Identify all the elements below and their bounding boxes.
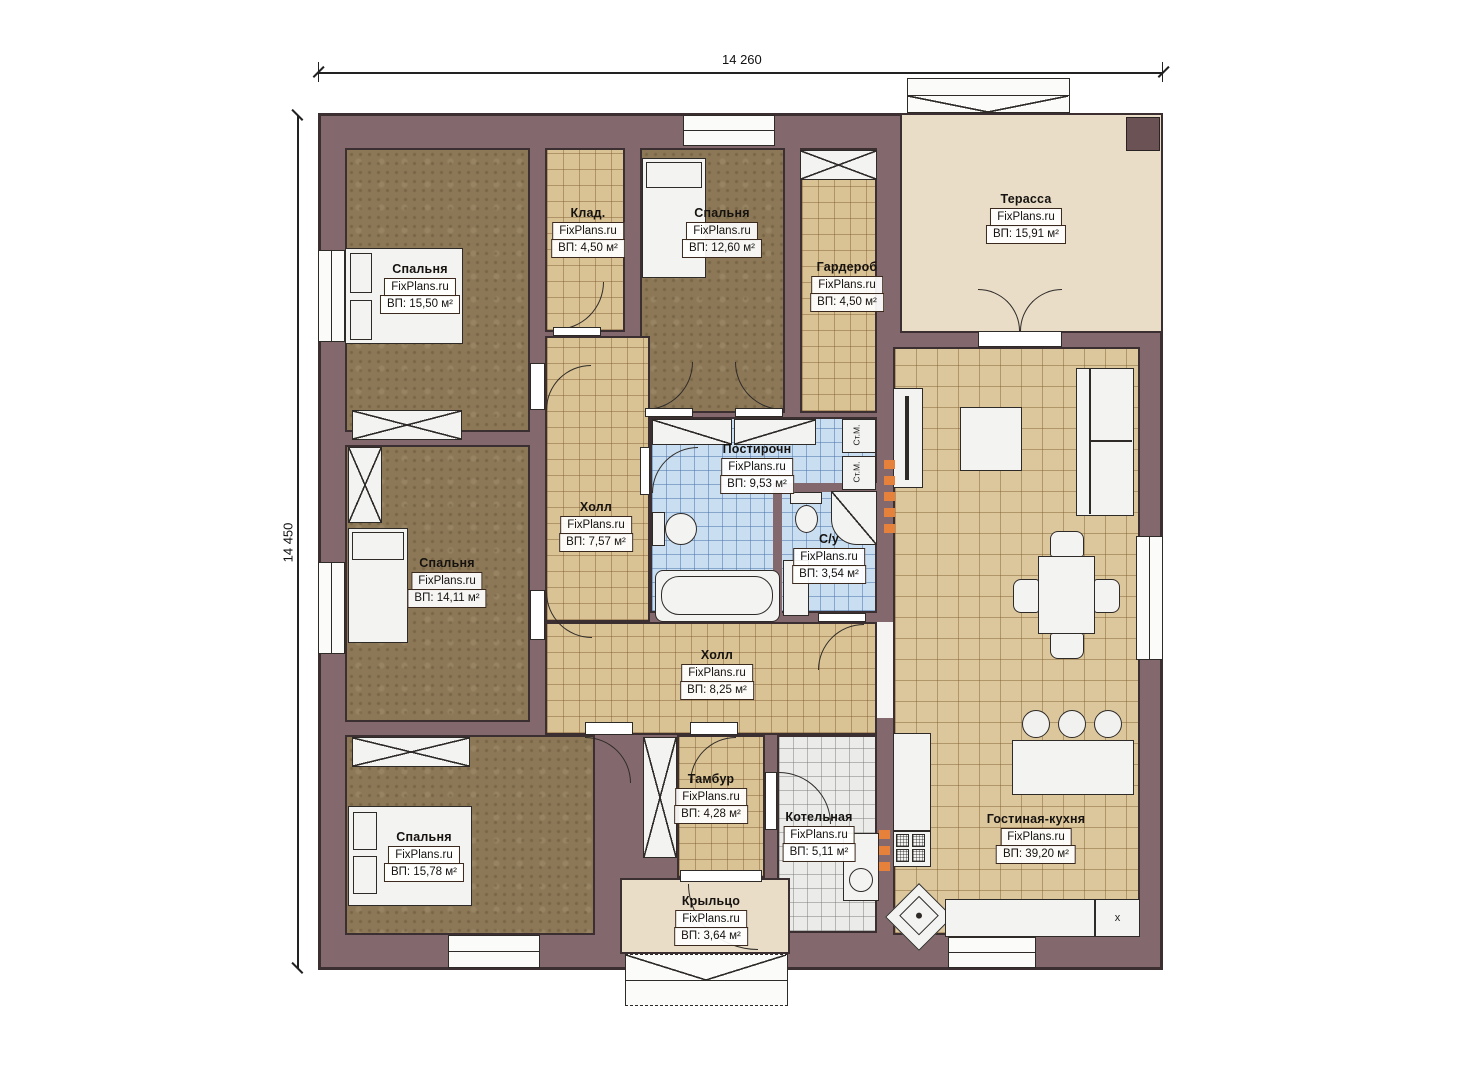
room-area: ВП: 15,91 м² — [986, 225, 1066, 244]
radiator — [879, 830, 890, 878]
room-label-hall-2: Холл FixPlans.ru ВП: 8,25 м² — [680, 648, 754, 700]
room-label-bedroom-3: Спальня FixPlans.ru ВП: 14,11 м² — [407, 556, 486, 608]
kitchen-counter-bottom — [945, 899, 1095, 937]
dimension-line-left — [297, 115, 299, 968]
watermark: FixPlans.ru — [1000, 828, 1072, 847]
room-label-bathroom: С/у FixPlans.ru ВП: 3,54 м² — [792, 532, 866, 584]
watermark: FixPlans.ru — [560, 516, 632, 535]
watermark: FixPlans.ru — [675, 910, 747, 929]
sofa — [1076, 368, 1134, 516]
room-area: ВП: 3,54 м² — [792, 565, 866, 584]
dimension-line-top — [318, 72, 1163, 74]
room-label-terrace: Терасса FixPlans.ru ВП: 15,91 м² — [986, 192, 1066, 244]
chair — [1094, 579, 1120, 613]
pillow — [353, 812, 377, 850]
watermark: FixPlans.ru — [411, 572, 483, 591]
kitchen-counter-left — [893, 733, 931, 831]
watermark: FixPlans.ru — [721, 458, 793, 477]
window-bedroom-master — [318, 250, 345, 342]
room-label-living-kitchen: Гостиная-кухня FixPlans.ru ВП: 39,20 м² — [987, 812, 1086, 864]
passage-hall-living — [877, 622, 893, 718]
dimension-ext — [1162, 62, 1163, 82]
wardrobe — [352, 410, 462, 440]
watermark: FixPlans.ru — [388, 846, 460, 865]
coffee-table — [960, 407, 1022, 471]
room-area: ВП: 39,20 м² — [996, 845, 1076, 864]
wardrobe — [800, 150, 877, 180]
bar-stool — [1058, 710, 1086, 738]
door-bathroom — [818, 613, 866, 622]
door-klad — [553, 327, 601, 336]
pillow — [646, 162, 702, 188]
pillow — [352, 532, 404, 560]
room-area: ВП: 5,11 м² — [783, 843, 856, 862]
room-label-laundry: Постирочн FixPlans.ru ВП: 9,53 м² — [720, 442, 794, 494]
fridge-label: x — [1115, 912, 1121, 924]
door-tambur — [690, 722, 738, 735]
window-kitchen — [948, 937, 1036, 968]
door-bedroom-2 — [645, 408, 693, 417]
door-kotelnaya — [765, 772, 777, 830]
room-area: ВП: 7,57 м² — [559, 533, 633, 552]
room-area: ВП: 15,50 м² — [380, 295, 460, 314]
room-area: ВП: 12,60 м² — [682, 239, 762, 258]
floor-plan-canvas: 14 260 14 450 — [0, 0, 1473, 1080]
door-bedroom-4 — [585, 722, 633, 735]
terrace-column — [1126, 117, 1160, 151]
window-living — [1136, 536, 1163, 660]
terrace-window-icon — [907, 78, 1070, 113]
closet-tambur — [643, 737, 677, 858]
door-bedroom-master — [530, 363, 545, 410]
tv-screen — [905, 396, 909, 480]
wardrobe — [348, 447, 382, 523]
radiator — [884, 460, 895, 538]
wardrobe — [352, 737, 470, 767]
room-label-bedroom-2: Спальня FixPlans.ru ВП: 12,60 м² — [682, 206, 762, 258]
toilet-bowl — [665, 513, 697, 545]
room-label-klad: Клад. FixPlans.ru ВП: 4,50 м² — [551, 206, 625, 258]
room-area: ВП: 9,53 м² — [720, 475, 794, 494]
toilet-bowl — [795, 505, 818, 533]
chair — [1050, 531, 1084, 557]
window-bedroom-2 — [683, 115, 775, 146]
bathtub — [655, 570, 780, 622]
pillow — [350, 300, 372, 340]
chair — [1013, 579, 1039, 613]
watermark: FixPlans.ru — [675, 788, 747, 807]
door-bedroom-3 — [530, 590, 545, 640]
kitchen-island — [1012, 740, 1134, 795]
watermark: FixPlans.ru — [686, 222, 758, 241]
porch-steps — [625, 954, 788, 1006]
terrace-door-sill — [978, 331, 1062, 347]
window-bedroom-4 — [448, 935, 540, 968]
room-label-garderob: Гардероб FixPlans.ru ВП: 4,50 м² — [810, 260, 884, 312]
toilet-tank — [790, 492, 822, 504]
washing-machine-label: Ст.М. — [851, 425, 861, 446]
room-area: ВП: 8,25 м² — [680, 681, 754, 700]
room-area: ВП: 15,78 м² — [384, 863, 464, 882]
chair — [1050, 633, 1084, 659]
bar-stool — [1094, 710, 1122, 738]
door-laundry — [640, 447, 650, 495]
fridge: x — [1095, 899, 1140, 937]
window-bedroom-3 — [318, 562, 345, 654]
room-area: ВП: 4,50 м² — [810, 293, 884, 312]
dimension-height-label: 14 450 — [280, 523, 295, 563]
stove — [893, 831, 931, 867]
watermark: FixPlans.ru — [793, 548, 865, 567]
room-label-hall-1: Холл FixPlans.ru ВП: 7,57 м² — [559, 500, 633, 552]
room-area: ВП: 3,64 м² — [674, 927, 748, 946]
room-area: ВП: 14,11 м² — [407, 589, 486, 608]
room-label-bedroom-master: Спальня FixPlans.ru ВП: 15,50 м² — [380, 262, 460, 314]
room-label-bedroom-4: Спальня FixPlans.ru ВП: 15,78 м² — [384, 830, 464, 882]
dimension-ext — [318, 62, 319, 82]
pillow — [350, 253, 372, 293]
door-garderob — [735, 408, 783, 417]
toilet-tank — [652, 512, 665, 546]
dining-table — [1038, 556, 1095, 634]
pillow — [353, 856, 377, 894]
room-label-tambur: Тамбур FixPlans.ru ВП: 4,28 м² — [674, 772, 748, 824]
watermark: FixPlans.ru — [783, 826, 855, 845]
watermark: FixPlans.ru — [811, 276, 883, 295]
room-label-porch: Крыльцо FixPlans.ru ВП: 3,64 м² — [674, 894, 748, 946]
watermark: FixPlans.ru — [990, 208, 1062, 227]
washing-machine-label: Ст.М. — [851, 462, 861, 483]
bar-stool — [1022, 710, 1050, 738]
watermark: FixPlans.ru — [681, 664, 753, 683]
room-label-kotelnaya: Котельная FixPlans.ru ВП: 5,11 м² — [783, 810, 856, 862]
dimension-width-label: 14 260 — [722, 52, 762, 67]
room-area: ВП: 4,28 м² — [674, 805, 748, 824]
watermark: FixPlans.ru — [552, 222, 624, 241]
door-entrance — [680, 870, 762, 882]
room-area: ВП: 4,50 м² — [551, 239, 625, 258]
boiler — [849, 868, 873, 892]
watermark: FixPlans.ru — [384, 278, 456, 297]
